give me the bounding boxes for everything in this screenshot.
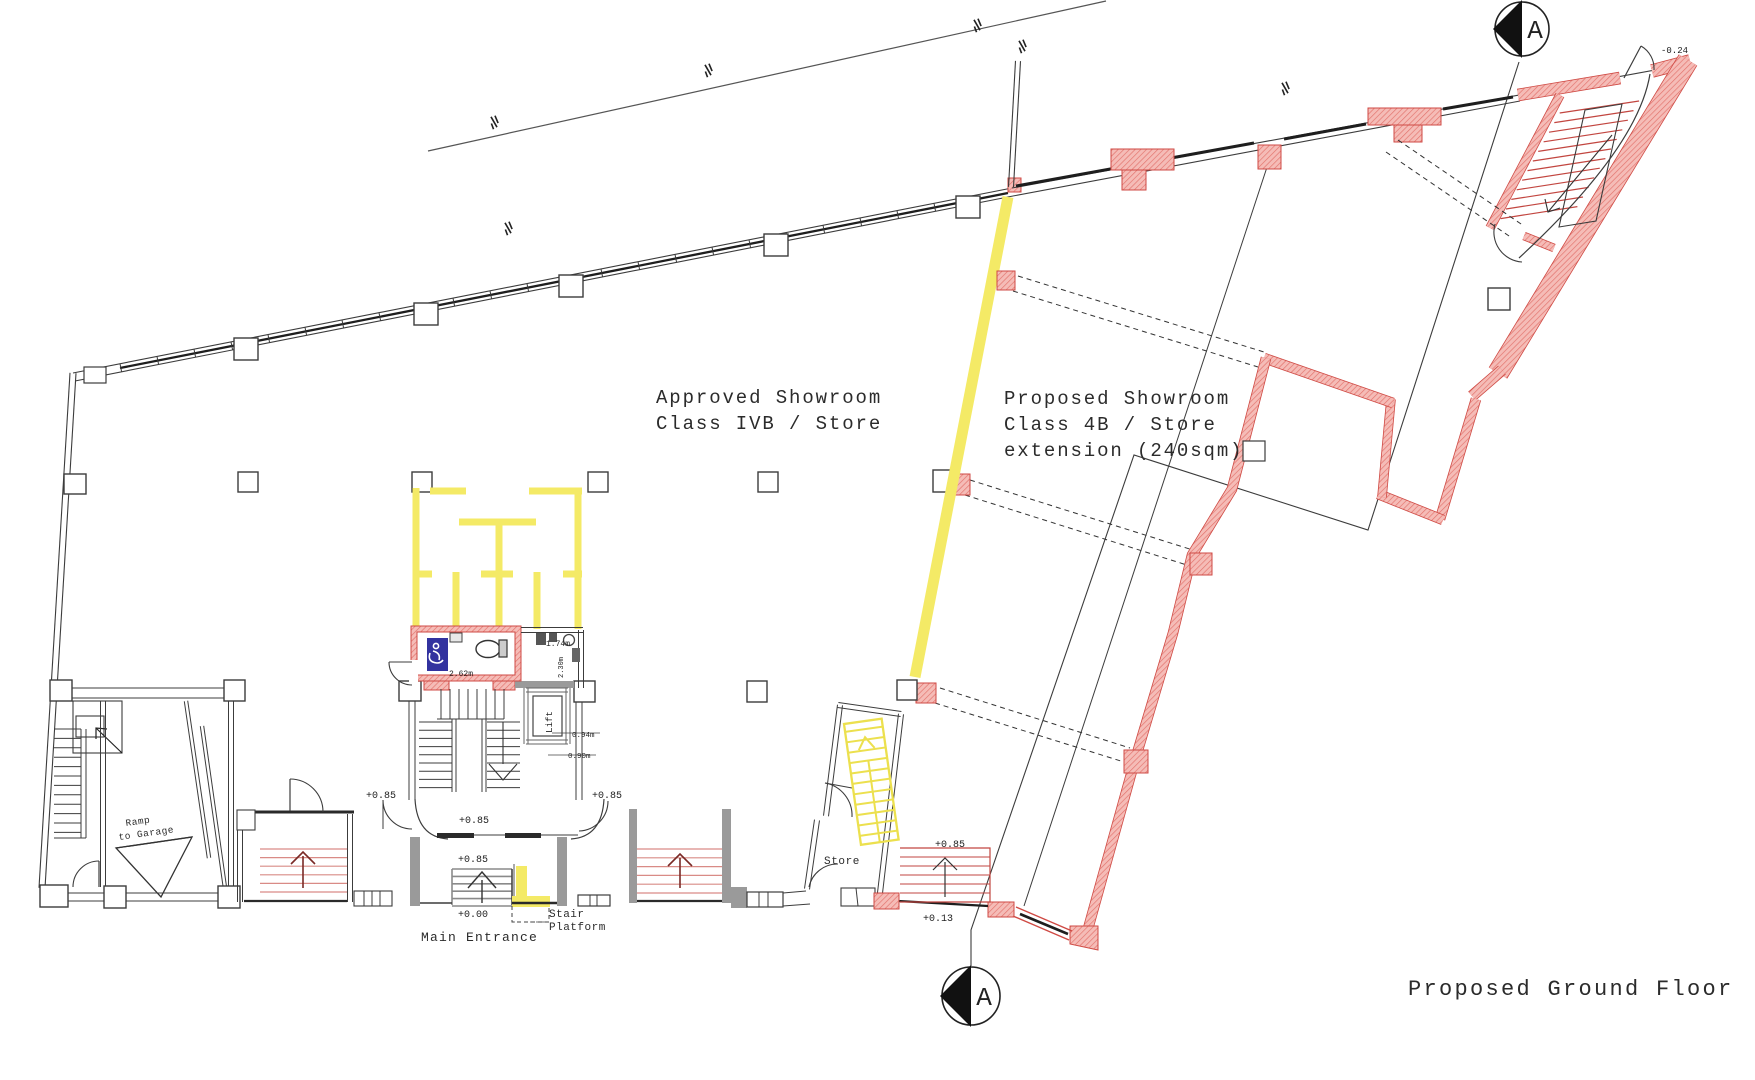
svg-text:Proposed Showroom: Proposed Showroom: [1004, 388, 1230, 410]
svg-text:Store: Store: [824, 856, 860, 868]
svg-text:2.62m: 2.62m: [449, 670, 473, 679]
svg-text:-0.24: -0.24: [1661, 46, 1688, 56]
svg-text:2.30m: 2.30m: [558, 657, 566, 678]
svg-text:+0.85: +0.85: [458, 855, 488, 866]
svg-text:+0.00: +0.00: [458, 910, 488, 921]
svg-text:Class 4B / Store: Class 4B / Store: [1004, 414, 1217, 436]
svg-text:0.90m: 0.90m: [568, 753, 591, 761]
svg-text:Platform: Platform: [549, 922, 606, 934]
svg-text:Proposed Ground Floor: Proposed Ground Floor: [1408, 977, 1734, 1002]
svg-text:+0.85: +0.85: [459, 816, 489, 827]
svg-text:A: A: [976, 983, 992, 1013]
svg-text:+0.13: +0.13: [923, 914, 953, 925]
svg-text:+0.85: +0.85: [366, 791, 396, 802]
svg-text:Main Entrance: Main Entrance: [421, 930, 538, 945]
svg-text:1.74m: 1.74m: [546, 640, 570, 649]
svg-text:0.94m: 0.94m: [572, 732, 595, 740]
svg-text:Approved Showroom: Approved Showroom: [656, 387, 882, 409]
svg-text:A: A: [1527, 16, 1543, 46]
svg-text:Stair: Stair: [549, 909, 585, 921]
svg-text:Class IVB / Store: Class IVB / Store: [656, 413, 882, 435]
svg-text:extension (240sqm): extension (240sqm): [1004, 440, 1243, 462]
svg-text:+0.85: +0.85: [592, 791, 622, 802]
svg-text:+0.85: +0.85: [935, 840, 965, 851]
svg-text:Lift: Lift: [545, 711, 555, 733]
